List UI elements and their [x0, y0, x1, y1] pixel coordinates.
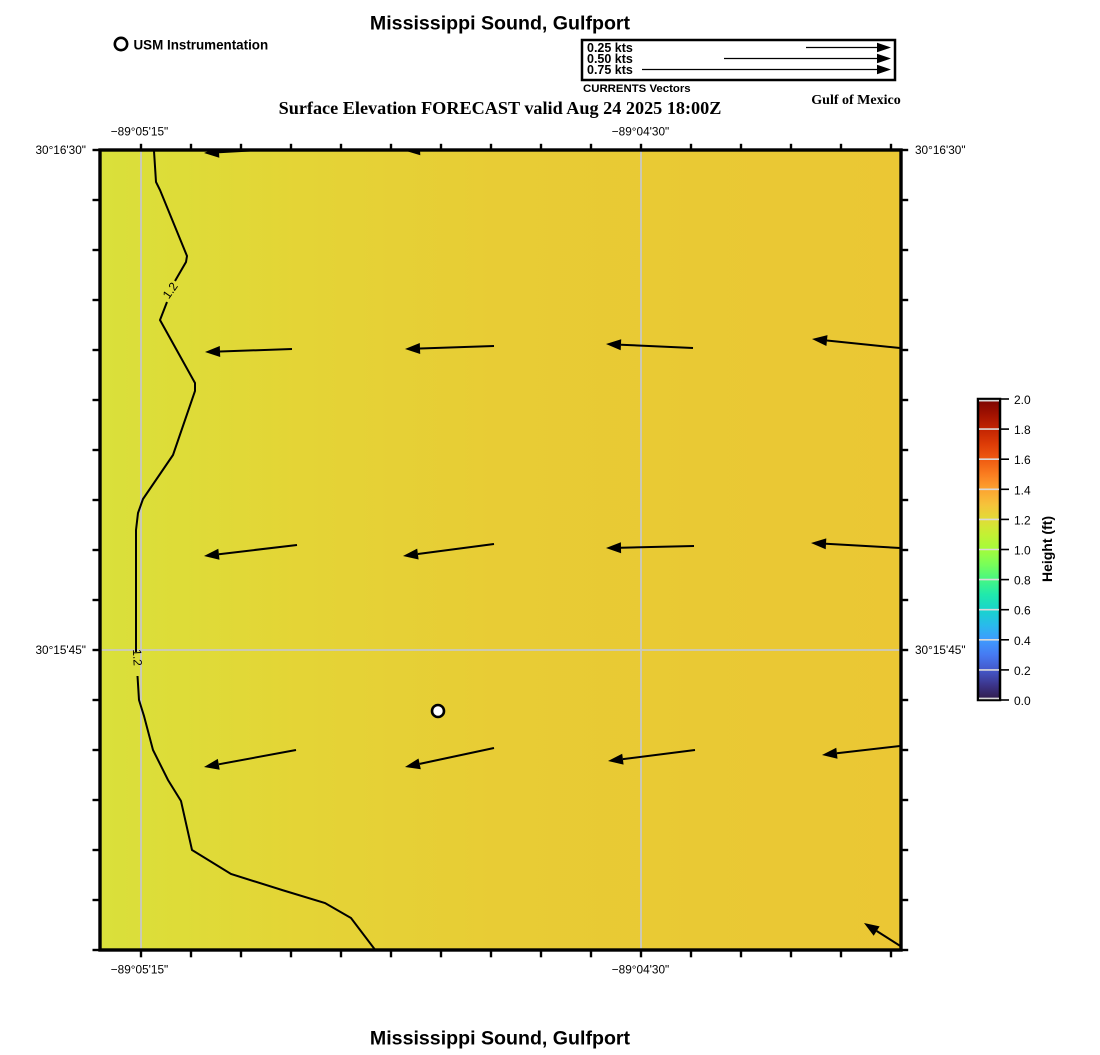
svg-text:Gulf of Mexico: Gulf of Mexico [811, 93, 900, 108]
svg-text:1.0: 1.0 [1014, 544, 1031, 558]
svg-text:0.2: 0.2 [1014, 664, 1031, 678]
svg-text:30°16'30": 30°16'30" [35, 143, 86, 157]
svg-text:1.4: 1.4 [1014, 483, 1031, 497]
svg-text:Mississippi Sound, Gulfport: Mississippi Sound, Gulfport [370, 1028, 631, 1050]
svg-text:−89°04'30": −89°04'30" [612, 125, 669, 139]
svg-text:1.2: 1.2 [1014, 513, 1031, 527]
svg-text:Height (ft): Height (ft) [1039, 516, 1055, 582]
svg-text:30°16'30": 30°16'30" [915, 143, 966, 157]
svg-text:Mississippi Sound, Gulfport: Mississippi Sound, Gulfport [370, 13, 631, 35]
svg-text:USM Instrumentation: USM Instrumentation [134, 38, 269, 53]
svg-text:1.8: 1.8 [1014, 423, 1031, 437]
svg-text:30°15'45": 30°15'45" [915, 643, 966, 657]
svg-text:0.6: 0.6 [1014, 604, 1031, 618]
svg-text:Surface Elevation FORECAST val: Surface Elevation FORECAST valid Aug 24 … [279, 98, 722, 118]
svg-text:1.6: 1.6 [1014, 453, 1031, 467]
svg-text:−89°05'15": −89°05'15" [111, 125, 168, 139]
svg-text:1.2: 1.2 [130, 649, 145, 667]
svg-text:−89°05'15": −89°05'15" [111, 963, 168, 977]
svg-text:0.0: 0.0 [1014, 694, 1031, 708]
svg-text:0.75 kts: 0.75 kts [587, 63, 633, 77]
svg-text:CURRENTS Vectors: CURRENTS Vectors [583, 83, 691, 95]
svg-text:0.8: 0.8 [1014, 574, 1031, 588]
svg-text:−89°04'30": −89°04'30" [612, 963, 669, 977]
svg-text:2.0: 2.0 [1014, 393, 1031, 407]
svg-text:30°15'45": 30°15'45" [35, 643, 86, 657]
svg-text:0.4: 0.4 [1014, 634, 1031, 648]
